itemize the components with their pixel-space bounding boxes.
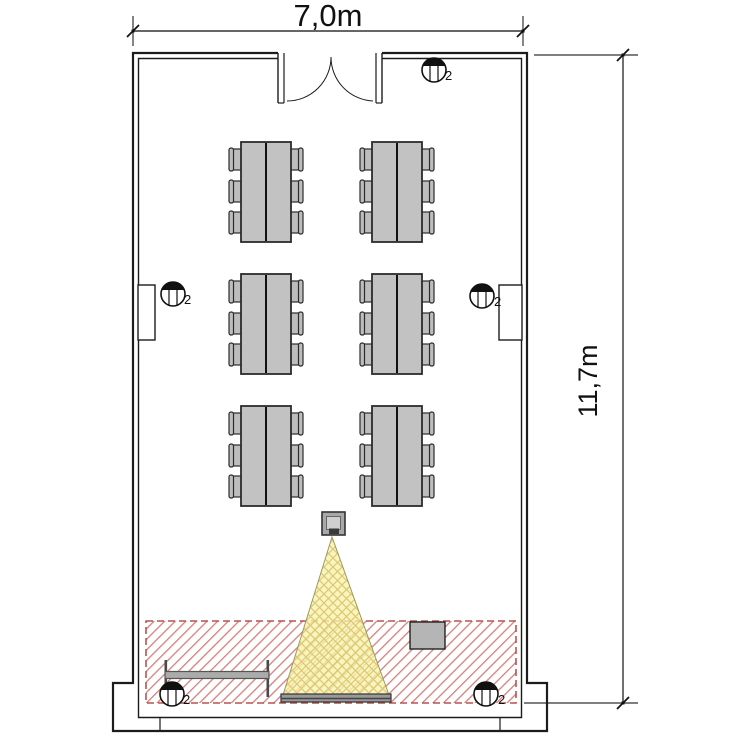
table-group — [360, 406, 434, 506]
entrance-door — [278, 53, 382, 103]
light-count-label: 2 — [184, 292, 191, 307]
height-dimension: 11,7m — [524, 49, 638, 709]
height-dimension-label: 11,7m — [573, 344, 603, 417]
projector — [322, 512, 345, 535]
light-count-label: 2 — [498, 692, 505, 707]
projector-beam — [283, 537, 389, 695]
equipment-cabinet — [410, 622, 445, 649]
seating-area — [229, 142, 434, 506]
light-count-label: 2 — [183, 692, 190, 707]
wall-pilaster-left — [138, 285, 155, 340]
light-icon — [474, 682, 498, 706]
table-group — [360, 274, 434, 374]
table-group — [229, 142, 303, 242]
light-count-label: 2 — [494, 294, 501, 309]
light-count-label: 2 — [445, 68, 452, 83]
light-icon — [161, 282, 185, 306]
light-icon — [470, 284, 494, 308]
table-group — [360, 142, 434, 242]
wall-pilaster-right — [499, 285, 522, 340]
floor-plan: 7,0m 11,7m — [0, 0, 750, 750]
projection-screen — [281, 694, 391, 702]
width-dimension-label: 7,0m — [294, 0, 363, 33]
width-dimension: 7,0m — [127, 0, 529, 46]
light-icon — [422, 58, 446, 82]
light-icon — [160, 682, 184, 706]
table-group — [229, 274, 303, 374]
table-group — [229, 406, 303, 506]
